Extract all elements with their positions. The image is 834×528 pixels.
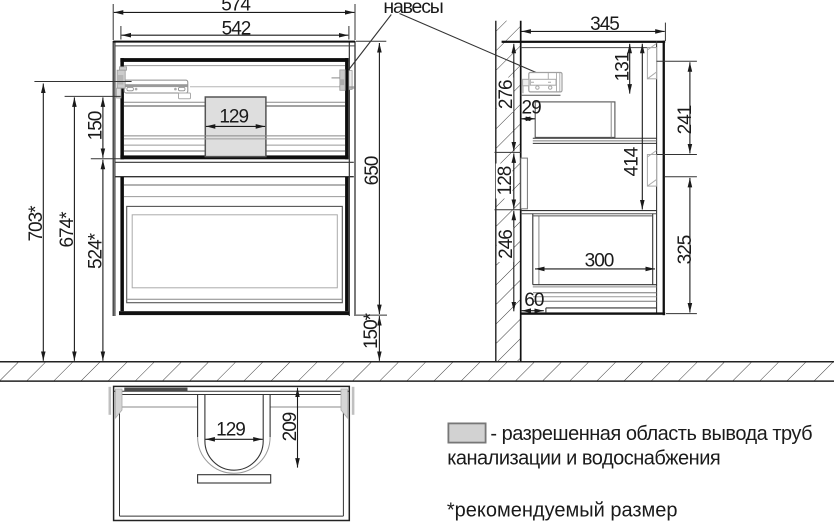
svg-text:246: 246 <box>496 230 517 259</box>
svg-text:209: 209 <box>280 412 301 441</box>
svg-text:524*: 524* <box>85 232 106 269</box>
svg-text:131: 131 <box>613 52 634 81</box>
svg-text:129: 129 <box>219 106 248 127</box>
svg-text:129: 129 <box>216 419 245 440</box>
svg-text:*рекомендуемый размер: *рекомендуемый размер <box>447 500 678 522</box>
svg-text:150: 150 <box>85 111 106 140</box>
svg-text:29: 29 <box>522 98 542 119</box>
svg-text:- разрешенная область вывода т: - разрешенная область вывода труб <box>490 423 812 445</box>
svg-text:325: 325 <box>675 235 696 264</box>
svg-text:414: 414 <box>622 146 643 176</box>
svg-text:60: 60 <box>524 290 544 311</box>
svg-text:128: 128 <box>495 166 516 195</box>
svg-text:703*: 703* <box>26 205 47 242</box>
svg-text:канализации и водоснабжения: канализации и водоснабжения <box>447 448 720 470</box>
svg-text:150*: 150* <box>361 312 382 349</box>
svg-text:674*: 674* <box>57 211 78 248</box>
svg-text:650: 650 <box>362 156 383 185</box>
svg-text:574: 574 <box>221 0 251 16</box>
svg-text:276: 276 <box>496 80 517 109</box>
svg-text:345: 345 <box>590 14 619 35</box>
svg-text:542: 542 <box>222 18 251 39</box>
svg-text:навесы: навесы <box>383 0 442 18</box>
svg-text:241: 241 <box>675 105 696 134</box>
